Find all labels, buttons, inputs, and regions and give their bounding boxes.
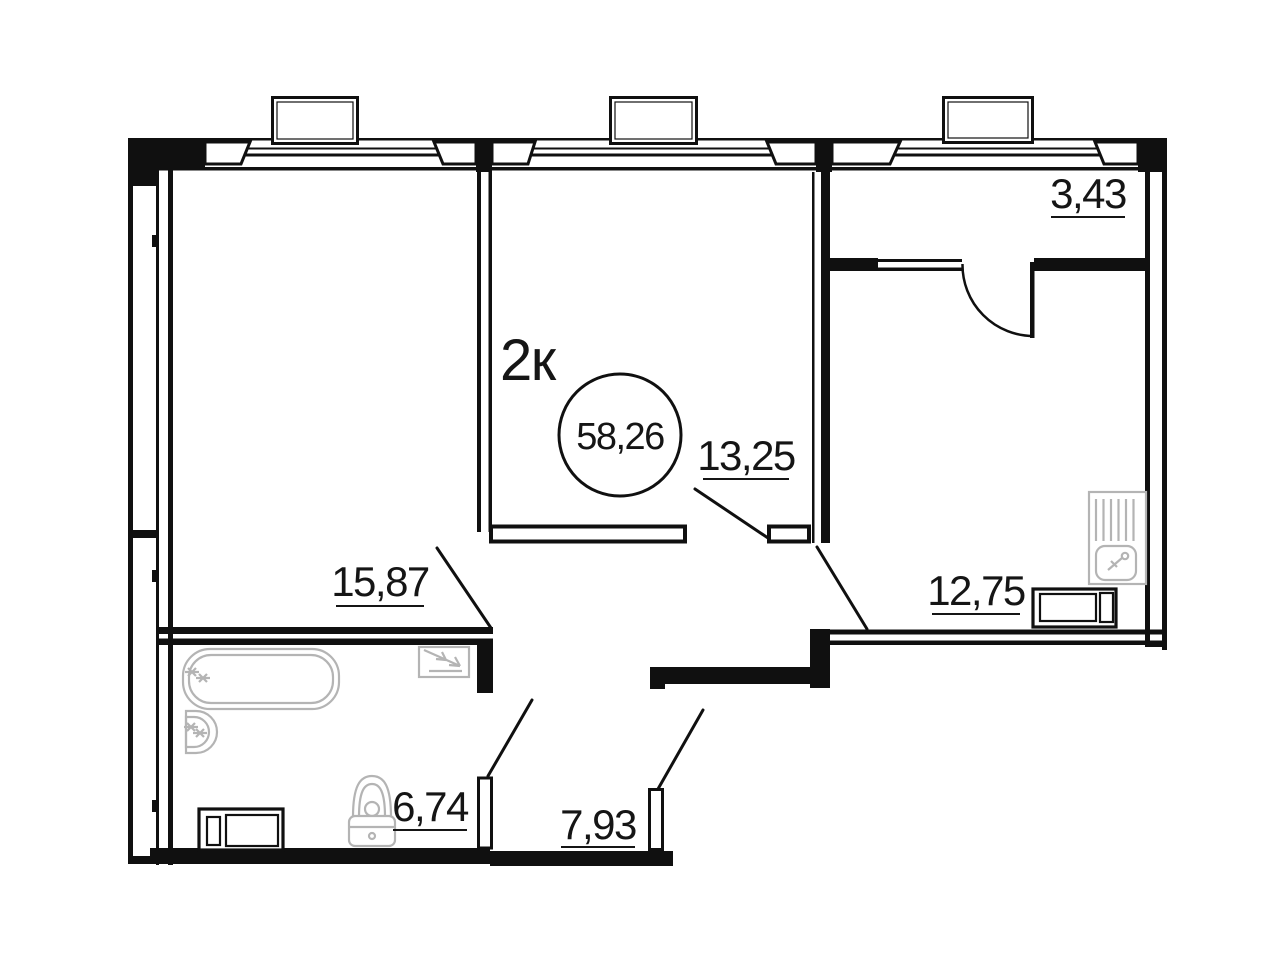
room-label-corridor: 7,93: [560, 801, 636, 848]
labels: 2к 58,26 15,87 13,25 12,75 6,74 7,93 3,4…: [331, 170, 1126, 848]
door-swing-icon: [962, 262, 1034, 338]
wall-corridor-top: [650, 629, 830, 689]
wall-pier: [128, 138, 205, 170]
room-label-kitchen: 12,75: [927, 567, 1025, 614]
top-wall-window-band: [128, 98, 1167, 187]
svg-text:3,43: 3,43: [1050, 170, 1126, 217]
total-area-label: 58,26: [576, 416, 664, 458]
window-icon: [240, 148, 1104, 157]
window-sill-box: [273, 98, 1033, 144]
wall-entry-kitchen: [830, 258, 1145, 338]
wall-kitchen-bottom: [810, 630, 1162, 646]
wash-basin-icon: [184, 711, 217, 753]
stove-icon: [1033, 589, 1116, 627]
room-label-bathroom: 6,74: [392, 783, 469, 830]
floor-plan: 2к 58,26 15,87 13,25 12,75 6,74 7,93 3,4…: [0, 0, 1280, 974]
kitchen-sink-icon: [1089, 492, 1146, 584]
room-label-entry: 3,43: [1050, 170, 1126, 217]
door-post: [479, 778, 492, 848]
window-jambs: [205, 142, 1138, 164]
wall-living2-kitchen: [812, 172, 830, 543]
room-label-living2: 13,25: [697, 432, 795, 479]
left-exterior-wall: [128, 138, 173, 865]
wall-living1-living2: [477, 172, 492, 532]
svg-text:7,93: 7,93: [560, 801, 636, 848]
right-exterior-wall: [1145, 140, 1167, 650]
room-label-living1: 15,87: [331, 558, 429, 606]
apartment-type-label: 2к: [500, 328, 557, 393]
wall-pier: [476, 138, 492, 172]
door-post: [650, 790, 663, 850]
washing-machine-icon: [199, 809, 283, 850]
wall-pier: [816, 138, 832, 172]
svg-text:15,87: 15,87: [331, 558, 429, 605]
bathtub-icon: [183, 649, 339, 709]
wall-bathroom-bottom: [128, 848, 490, 864]
svg-text:12,75: 12,75: [927, 567, 1025, 614]
svg-text:13,25: 13,25: [697, 432, 795, 479]
shower-vent-icon: [419, 647, 469, 677]
toilet-icon: [349, 776, 395, 846]
svg-text:6,74: 6,74: [392, 783, 469, 830]
total-area-badge: 58,26: [559, 374, 681, 496]
floor-plan-canvas: 2к 58,26 15,87 13,25 12,75 6,74 7,93 3,4…: [0, 0, 1280, 974]
